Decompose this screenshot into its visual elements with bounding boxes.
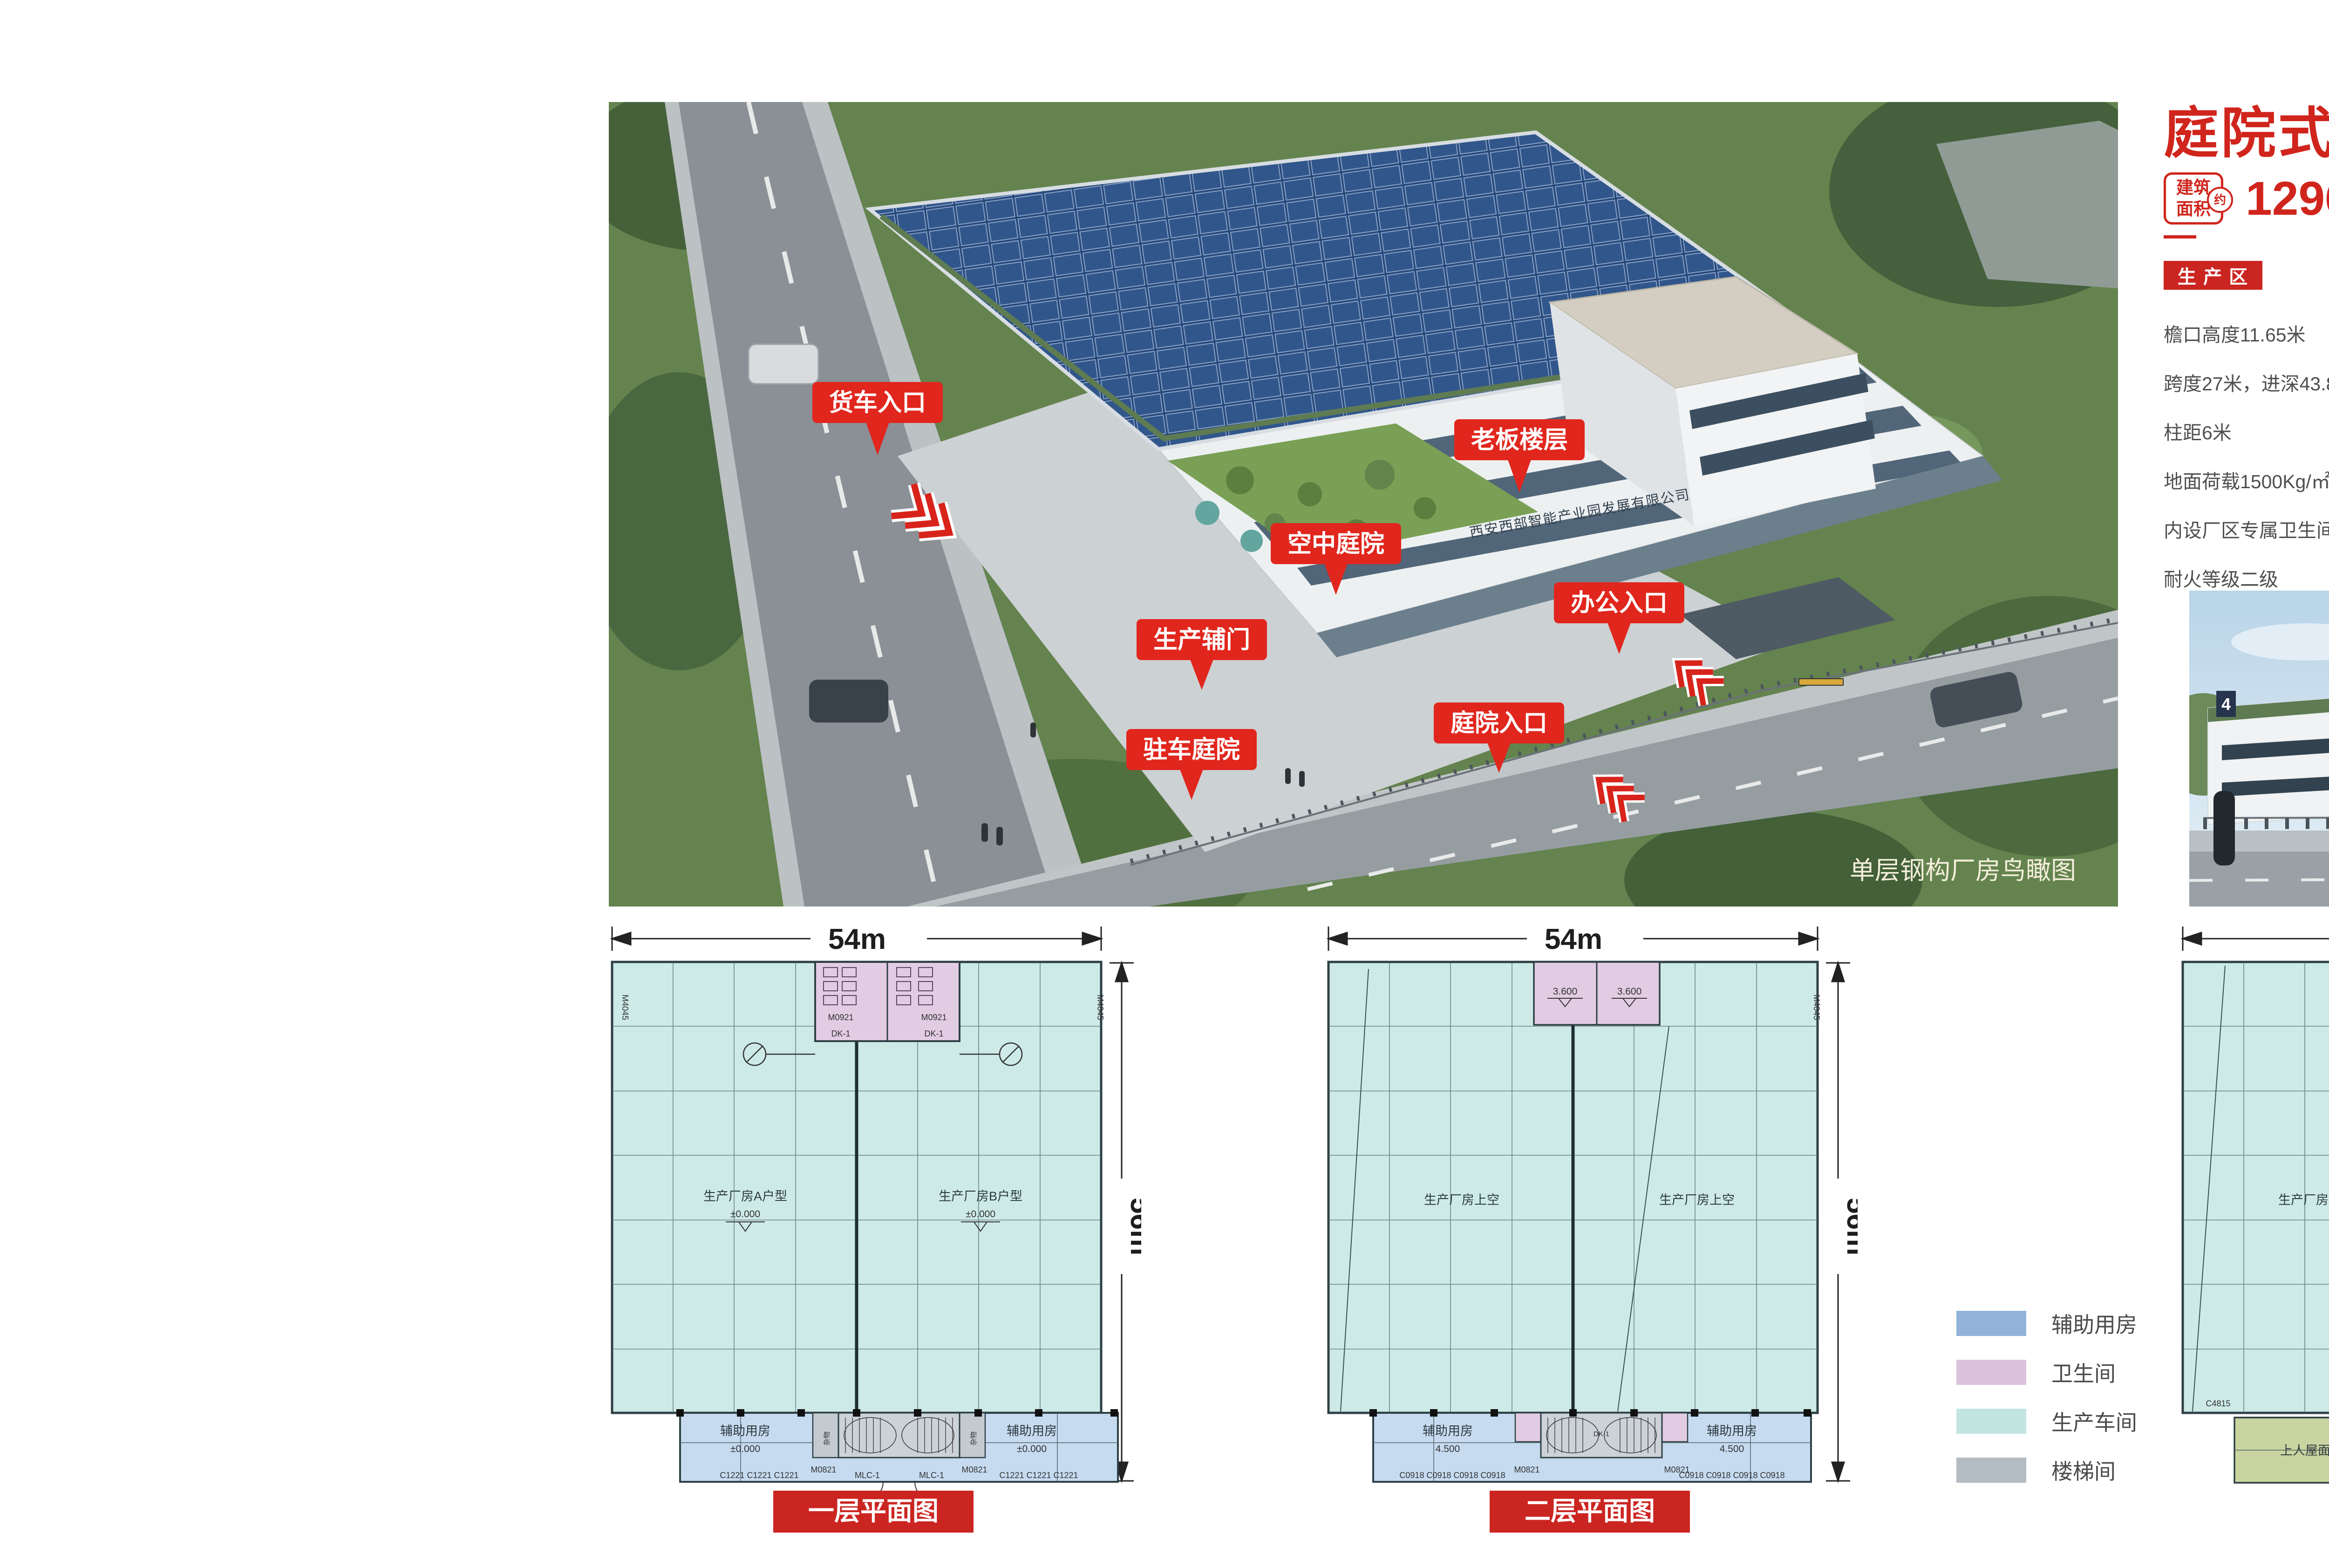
wc-door-label: M0921	[828, 1013, 853, 1022]
window-labels: C0918 C0918 C0918 C0918	[1679, 1471, 1784, 1480]
stair-code-label: DK-1	[831, 1029, 850, 1038]
side-door-label: M4045	[1812, 995, 1821, 1020]
svg-text:庭院入口: 庭院入口	[1451, 710, 1547, 737]
dim-height-label: 56m	[1124, 1198, 1141, 1255]
wc-block: 3.600 3.600	[1534, 962, 1660, 1025]
legend-swatch-wc	[1956, 1360, 2026, 1385]
window-labels: C0918 C0918 C0918 C0918	[1399, 1471, 1505, 1480]
corner-window-label: C4815	[2206, 1399, 2230, 1408]
legend-swatch-stair	[1956, 1458, 2026, 1483]
dim-width-label: 54m	[828, 925, 886, 955]
aerial-caption: 单层钢构厂房鸟瞰图	[1850, 857, 2076, 885]
wc-level-label: 3.600	[1553, 986, 1578, 997]
wc-level-label: 3.600	[1617, 986, 1642, 997]
aux-room-label: 辅助用房	[1007, 1424, 1057, 1438]
door-label: M0821	[1514, 1465, 1539, 1474]
svg-text:空中庭院: 空中庭院	[1287, 531, 1384, 558]
aux-level-label: 4.500	[1720, 1444, 1744, 1454]
legend: 辅助用房 卫生间 生产车间 楼梯间	[1956, 1299, 2137, 1494]
area-value: 1296m²+405m²	[2246, 171, 2329, 226]
svg-text:驻车庭院: 驻车庭院	[1143, 736, 1240, 764]
room-label-b: 生产厂房上空	[1659, 1193, 1735, 1207]
legend-swatch-aux	[1956, 1311, 2026, 1336]
aerial-photo: 西安西部智能产业园发展有限公司 货车入口 老板楼层 空中庭院	[609, 102, 2118, 907]
room-label-a: 生产厂房上空	[1424, 1193, 1499, 1207]
room-label-a: 生产厂房上空	[2278, 1193, 2329, 1207]
aux-room-label: 辅助用房	[720, 1424, 770, 1438]
level-label: ±0.000	[730, 1209, 760, 1220]
side-door-label: M4045	[620, 995, 630, 1020]
misc-room-label: 杂物	[970, 1432, 978, 1445]
legend-label: 生产车间	[2051, 1406, 2137, 1437]
legend-item: 卫生间	[1956, 1348, 2137, 1397]
spec-column-production: 生 产 区 檐口高度11.65米 跨度27米，进深43.8米 柱距6米 地面荷载…	[2164, 261, 2329, 602]
workshop-void	[2183, 962, 2329, 1413]
legend-label: 楼梯间	[2051, 1455, 2116, 1486]
aux-room-label: 辅助用房	[1707, 1424, 1757, 1438]
area-row: 建筑 面积 约 1296m²+405m² （以4号厂房为例）	[2164, 171, 2329, 225]
wc-door-label: M0921	[921, 1013, 947, 1022]
spec-item: 地面荷载1500Kg/㎡	[2164, 455, 2329, 504]
door-label: M0821	[810, 1465, 836, 1474]
misc-room-label: 杂物	[823, 1432, 831, 1445]
svg-text:办公入口: 办公入口	[1571, 590, 1668, 617]
svg-text:老板楼层: 老板楼层	[1471, 427, 1568, 454]
floor-plan-2: 54m 56m 3.600 3.600 生产厂房上空	[1322, 925, 1858, 1535]
stair-code-label: DK-1	[1594, 1430, 1609, 1438]
legend-swatch-workshop	[1956, 1409, 2026, 1434]
flyer-canvas: 西安西部智能产业园发展有限公司 货车入口 老板楼层 空中庭院	[0, 0, 2329, 1568]
area-approx-badge: 约	[2207, 187, 2233, 213]
floor-plan-1: 54m 56m	[606, 925, 1141, 1535]
legend-item: 生产车间	[1956, 1397, 2137, 1445]
spec-item: 柱距6米	[2164, 406, 2329, 455]
render-photo: 4 西安西部智能产业园发展有限公司	[2189, 591, 2329, 907]
page-title: 庭院式双拼单层钢构	[2164, 89, 2329, 168]
dim-height-label: 56m	[1841, 1198, 1858, 1255]
red-divider	[2164, 235, 2196, 239]
stair-code-label: DK-1	[924, 1029, 943, 1038]
room-label-a: 生产厂房A户型	[703, 1189, 787, 1203]
dim-width-label: 54m	[1545, 925, 1602, 955]
toilet-block: M0921 M0921 DK-1 DK-1	[815, 962, 960, 1041]
svg-text:生产辅门: 生产辅门	[1153, 627, 1250, 654]
svg-text:货车入口: 货车入口	[829, 389, 926, 416]
unit-plate: 4	[2221, 695, 2231, 714]
spec-item: 内设厂区专属卫生间	[2164, 504, 2329, 553]
spec-item: 跨度27米，进深43.8米	[2164, 357, 2329, 406]
spec-item: 檐口高度11.65米	[2164, 308, 2329, 357]
room-label-b: 生产厂房B户型	[939, 1189, 1022, 1203]
legend-item: 楼梯间	[1956, 1445, 2137, 1494]
entry-door-label: MLC-1	[855, 1471, 880, 1480]
legend-item: 辅助用房	[1956, 1299, 2137, 1348]
aux-level-label: ±0.000	[730, 1444, 760, 1454]
production-zone-badge: 生 产 区	[2164, 261, 2262, 290]
dim-top	[2183, 927, 2329, 951]
entry-door-label: MLC-1	[919, 1471, 944, 1480]
production-spec-list: 檐口高度11.65米 跨度27米，进深43.8米 柱距6米 地面荷载1500Kg…	[2164, 308, 2329, 602]
aux-room-label: 辅助用房	[1423, 1424, 1473, 1438]
legend-label: 辅助用房	[2051, 1308, 2137, 1339]
plan-title-label: 一层平面图	[808, 1496, 939, 1526]
aux-level-label: ±0.000	[1017, 1444, 1047, 1454]
legend-label: 卫生间	[2051, 1357, 2116, 1388]
spec-item: 耐火等级二级	[2164, 553, 2329, 602]
window-labels: C1221 C1221 C1221	[999, 1471, 1078, 1480]
aux-strip: 杂物 杂物 辅助用房 ±0.000 辅助用房 ±0.000 M0821 M082…	[676, 1409, 1118, 1500]
area-badge: 建筑 面积 约	[2164, 172, 2223, 225]
floor-plan-3: 54m 56m 生产厂房上空 生产厂房上空 C4815 C4815 M4045	[2176, 925, 2329, 1535]
side-door-label: M4045	[1096, 995, 1105, 1020]
roof-label: 上人屋面	[2280, 1444, 2329, 1458]
roof-terraces: 上人屋面 上人屋面	[2234, 1418, 2329, 1483]
level-label: ±0.000	[966, 1209, 995, 1220]
aux-strip: DK-1 辅助用房 4.500 辅助用房 4.500 M0821 M0821 C…	[1369, 1409, 1811, 1482]
plan-title-label: 二层平面图	[1525, 1496, 1655, 1526]
aux-level-label: 4.500	[1436, 1444, 1460, 1454]
door-label: M0821	[961, 1465, 987, 1474]
window-labels: C1221 C1221 C1221	[720, 1471, 798, 1480]
